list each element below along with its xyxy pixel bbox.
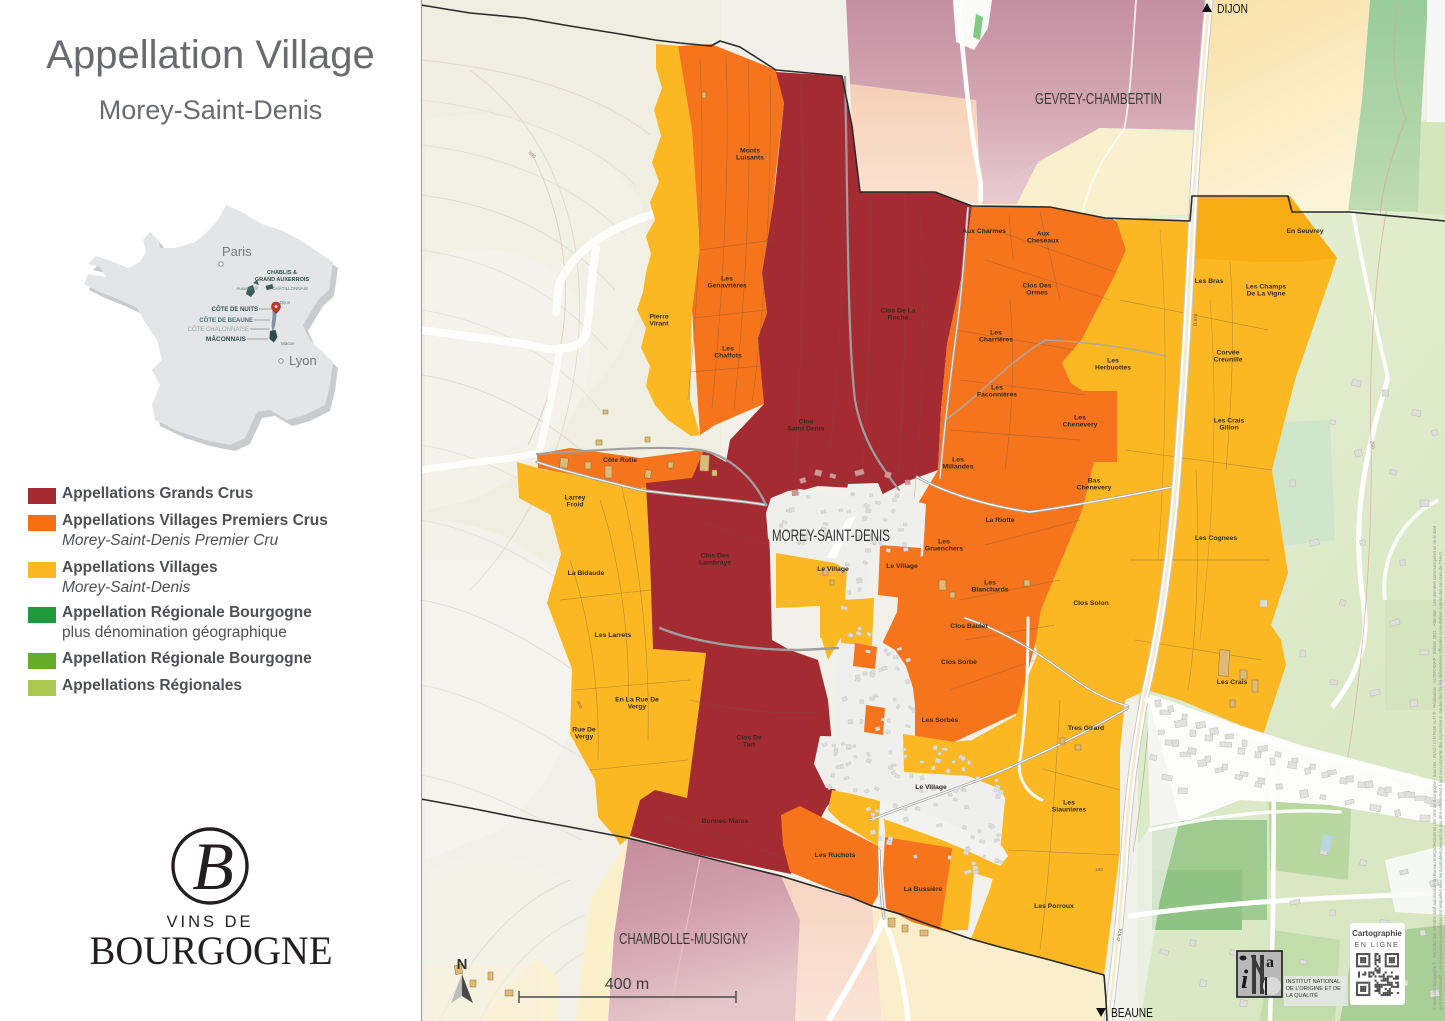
svg-text:400 m: 400 m	[605, 976, 649, 993]
svg-text:Roche: Roche	[888, 315, 909, 322]
svg-text:Clos Solon: Clos Solon	[1073, 600, 1109, 607]
svg-text:La Bussière: La Bussière	[904, 886, 943, 893]
svg-text:Le Village: Le Village	[886, 563, 918, 570]
svg-text:DE L’ORIGINE ET DE: DE L’ORIGINE ET DE	[1286, 986, 1341, 992]
svg-text:Le Village: Le Village	[915, 784, 947, 791]
svg-text:Les Champs: Les Champs	[1246, 283, 1287, 290]
svg-text:Les: Les	[1107, 357, 1119, 364]
svg-text:Gillon: Gillon	[1219, 425, 1238, 432]
svg-text:Mâcon: Mâcon	[281, 341, 295, 346]
svg-text:Les Crais: Les Crais	[1214, 417, 1245, 424]
svg-text:Aux Charmes: Aux Charmes	[962, 228, 1006, 235]
svg-text:En Seuvrey: En Seuvrey	[1286, 228, 1323, 235]
svg-text:Chenevery: Chenevery	[1063, 422, 1098, 429]
svg-text:Tres Girard: Tres Girard	[1068, 725, 1104, 732]
svg-text:EN LIGNE: EN LIGNE	[1355, 942, 1400, 949]
svg-text:Aux: Aux	[1037, 230, 1050, 237]
svg-text:Clos De La: Clos De La	[880, 307, 915, 314]
svg-text:i: i	[1241, 965, 1249, 994]
svg-text:Clos De: Clos De	[736, 734, 762, 741]
svg-text:Faconnières: Faconnières	[977, 392, 1017, 399]
svg-text:Blanchards: Blanchards	[971, 587, 1008, 594]
svg-text:Clos Des: Clos Des	[700, 552, 729, 559]
svg-text:Les: Les	[990, 329, 1002, 336]
svg-text:Froid: Froid	[567, 502, 584, 509]
svg-text:Les: Les	[991, 384, 1003, 391]
svg-text:Les Sorbès: Les Sorbès	[922, 717, 959, 724]
svg-text:Monts: Monts	[740, 147, 760, 154]
svg-text:Charrières: Charrières	[979, 337, 1013, 344]
svg-text:Paris: Paris	[222, 244, 252, 259]
svg-text:Larrey: Larrey	[565, 494, 586, 501]
svg-text:GRAND AUXERROIS: GRAND AUXERROIS	[255, 277, 310, 283]
svg-text:Clos Des: Clos Des	[1022, 282, 1051, 289]
svg-text:Clos Sorbè: Clos Sorbè	[941, 659, 977, 666]
svg-text:Cartographie: Cartographie	[1352, 929, 1402, 938]
svg-text:Les Cognees: Les Cognees	[1195, 535, 1238, 542]
svg-text:Auxerre: Auxerre	[236, 286, 252, 291]
svg-text:Chaffots: Chaffots	[714, 353, 742, 360]
svg-text:© www.vins-bourgogne.fr - Repr: © www.vins-bourgogne.fr - Reproduction i…	[1432, 525, 1437, 1010]
svg-text:qu’à titre informatif. Les dél: qu’à titre informatif. Les déliméations …	[1438, 551, 1443, 1010]
svg-text:Les Crais: Les Crais	[1217, 679, 1248, 686]
svg-text:Herbuottes: Herbuottes	[1095, 365, 1131, 372]
svg-text:Les: Les	[938, 538, 950, 545]
svg-text:Gruenchers: Gruenchers	[925, 546, 963, 553]
svg-text:Lyon: Lyon	[289, 353, 317, 368]
svg-text:Lambrays: Lambrays	[699, 560, 731, 567]
svg-text:BEAUNE: BEAUNE	[1111, 1005, 1153, 1020]
svg-text:Siaunieres: Siaunieres	[1052, 807, 1087, 814]
svg-text:Les Ruchots: Les Ruchots	[815, 852, 856, 859]
svg-text:Tart: Tart	[743, 742, 756, 749]
svg-text:Les Larrets: Les Larrets	[595, 632, 632, 639]
svg-text:Les: Les	[952, 456, 964, 463]
svg-text:En La Rue De: En La Rue De	[615, 696, 659, 703]
svg-text:Bas: Bas	[1088, 477, 1101, 484]
svg-text:CÔTE CHALONNAISE: CÔTE CHALONNAISE	[188, 326, 249, 333]
svg-text:Rue De: Rue De	[572, 726, 596, 733]
svg-text:Bonnes-Mares: Bonnes-Mares	[702, 818, 749, 825]
svg-text:LA QUALITÉ: LA QUALITÉ	[1286, 992, 1318, 999]
svg-text:B: B	[192, 828, 234, 904]
svg-text:Vergy: Vergy	[575, 734, 594, 741]
svg-text:Les Porroux: Les Porroux	[1034, 903, 1074, 910]
svg-text:Vergy: Vergy	[628, 704, 647, 711]
svg-text:Pierre: Pierre	[649, 313, 668, 320]
svg-text:Le Village: Le Village	[817, 566, 849, 573]
svg-text:Ormes: Ormes	[1026, 290, 1048, 297]
svg-text:Millandes: Millandes	[943, 464, 974, 471]
svg-text:Luisants: Luisants	[736, 155, 764, 162]
svg-text:Virant: Virant	[649, 321, 669, 328]
svg-text:INSTITUT NATIONAL: INSTITUT NATIONAL	[1286, 979, 1340, 985]
svg-text:BOURGOGNE: BOURGOGNE	[90, 928, 333, 973]
svg-text:Côte Rotie: Côte Rotie	[603, 457, 637, 464]
svg-text:Les: Les	[722, 345, 734, 352]
svg-text:Les: Les	[1063, 799, 1075, 806]
svg-text:DIJON: DIJON	[1217, 1, 1248, 16]
svg-text:GEVREY-CHAMBERTIN: GEVREY-CHAMBERTIN	[1035, 91, 1162, 108]
svg-text:CHÂTILLONNAIS: CHÂTILLONNAIS	[272, 285, 308, 291]
svg-text:Chenevery: Chenevery	[1077, 485, 1112, 492]
svg-text:Les: Les	[1074, 414, 1086, 421]
svg-text:Cheseaux: Cheseaux	[1027, 238, 1059, 245]
svg-text:Clos: Clos	[799, 418, 814, 425]
svg-text:Saint Denis: Saint Denis	[787, 426, 824, 433]
svg-text:Creunille: Creunille	[1213, 357, 1242, 364]
svg-text:a: a	[1266, 954, 1274, 971]
svg-text:Les Bras: Les Bras	[1195, 278, 1224, 285]
svg-text:Clos Baulet: Clos Baulet	[950, 623, 988, 630]
svg-text:Corvée: Corvée	[1216, 349, 1239, 356]
svg-text:MOREY-SAINT-DENIS: MOREY-SAINT-DENIS	[772, 526, 890, 545]
svg-text:MÂCONNAIS: MÂCONNAIS	[206, 334, 247, 343]
svg-text:Dijon: Dijon	[280, 300, 291, 305]
svg-text:N: N	[457, 956, 468, 973]
svg-text:CHABLIS &: CHABLIS &	[267, 270, 297, 276]
svg-text:La Bidaude: La Bidaude	[568, 570, 605, 577]
svg-text:CÔTE DE NUITS: CÔTE DE NUITS	[212, 305, 258, 313]
svg-text:Les: Les	[984, 579, 996, 586]
svg-text:Les: Les	[721, 275, 733, 282]
svg-text:CÔTE DE BEAUNE: CÔTE DE BEAUNE	[199, 316, 253, 324]
svg-text:De La Vigne: De La Vigne	[1247, 291, 1286, 298]
svg-text:Genavrières: Genavrières	[707, 283, 747, 290]
svg-text:CHAMBOLLE-MUSIGNY: CHAMBOLLE-MUSIGNY	[619, 931, 748, 948]
svg-text:190: 190	[1095, 867, 1103, 873]
svg-text:La Riotte: La Riotte	[985, 517, 1014, 524]
